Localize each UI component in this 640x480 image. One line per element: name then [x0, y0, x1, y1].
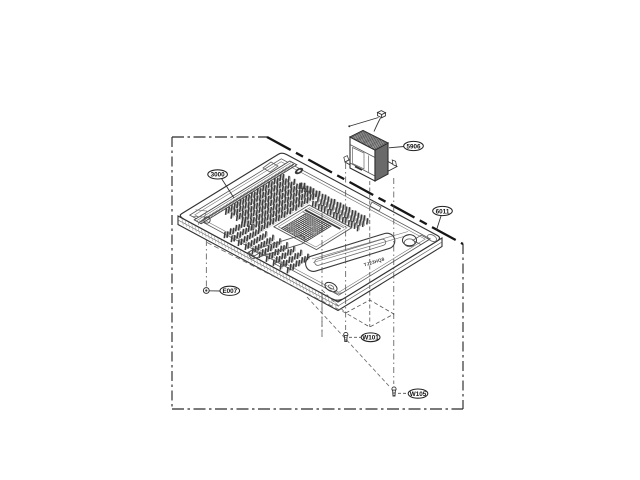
svg-text:W105: W105 [410, 391, 427, 398]
svg-text:E007: E007 [222, 288, 237, 295]
svg-text:3000: 3000 [211, 172, 226, 179]
svg-text:5906: 5906 [406, 143, 421, 150]
svg-text:6011: 6011 [436, 208, 450, 215]
svg-text:W101: W101 [362, 335, 379, 342]
